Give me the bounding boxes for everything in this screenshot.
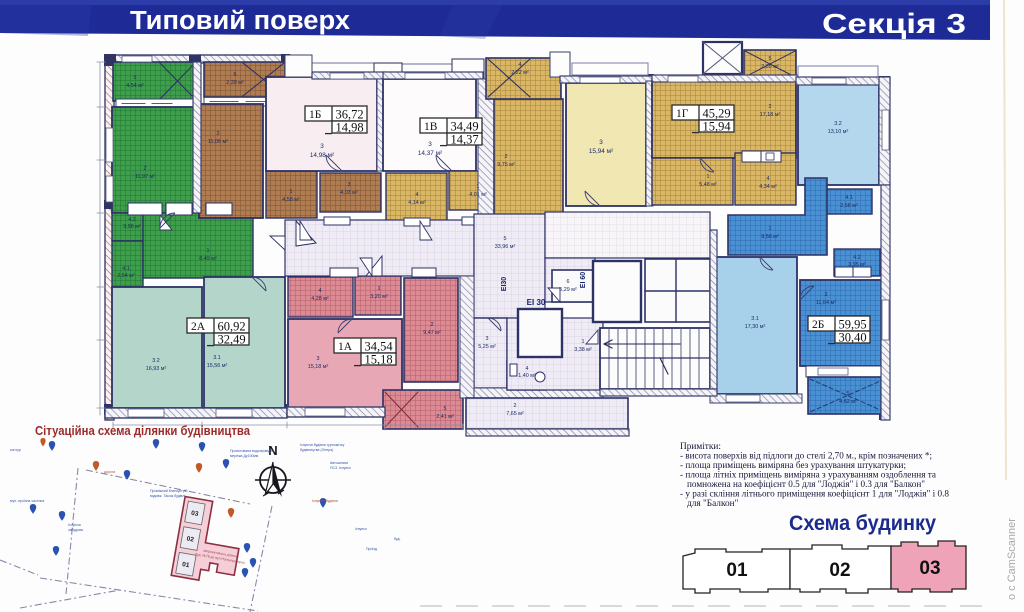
svg-text:2,22 м²: 2,22 м² [511,70,529,76]
svg-text:забудова: забудова [68,528,83,532]
svg-text:- площа літніх приміщень вимір: - площа літніх приміщень виміряна з урах… [680,470,936,481]
svg-text:4,14 м²: 4,14 м² [408,200,426,206]
svg-text:3: 3 [320,143,324,150]
svg-text:ПСЗ. Існуючі: ПСЗ. Існуючі [330,466,351,470]
svg-text:Проїзд: Проїзд [366,547,377,551]
svg-text:2,41 м²: 2,41 м² [436,414,454,420]
svg-text:Існуючі: Існуючі [355,527,367,531]
svg-text:4.2: 4.2 [128,217,136,223]
svg-text:4: 4 [519,62,522,68]
svg-text:1,40 м²: 1,40 м² [518,373,536,379]
svg-text:4,58 м²: 4,58 м² [282,197,300,203]
svg-text:14,37 м²: 14,37 м² [418,150,442,157]
svg-text:4.1: 4.1 [122,266,130,272]
svg-text:17,30 м²: 17,30 м² [745,324,766,330]
svg-text:помножена на коефіцієнт 0.5 дл: помножена на коефіцієнт 0.5 для "Лоджія"… [687,479,925,490]
svg-text:3.1: 3.1 [751,316,759,322]
svg-text:4.2: 4.2 [853,255,861,261]
svg-text:2А: 2А [191,321,206,333]
svg-text:36,72: 36,72 [335,108,363,122]
svg-text:1А: 1А [338,341,353,353]
svg-text:3.1: 3.1 [213,355,221,361]
svg-text:4,01 м²: 4,01 м² [469,192,487,198]
svg-text:3,95 м²: 3,95 м² [848,262,866,268]
svg-text:15,56 м²: 15,56 м² [207,363,228,369]
svg-text:EI 60: EI 60 [580,272,587,288]
svg-text:14,98: 14,98 [335,121,363,135]
svg-text:Автошляхи: Автошляхи [330,461,348,465]
svg-text:3: 3 [428,141,432,148]
svg-text:2: 2 [825,292,828,298]
svg-text:5,29 м²: 5,29 м² [559,287,577,293]
svg-text:2,54 м²: 2,54 м² [117,273,135,279]
svg-text:Схема будинку: Схема будинку [789,512,936,535]
svg-text:Проектована водопровідна: Проектована водопровідна [230,449,274,453]
svg-text:4: 4 [416,192,419,198]
svg-text:9,75 м²: 9,75 м² [497,162,515,168]
svg-text:15,18 м²: 15,18 м² [308,364,329,370]
svg-text:3: 3 [599,139,603,146]
svg-text:5: 5 [444,406,447,412]
svg-text:30,40: 30,40 [838,331,866,345]
svg-text:02: 02 [829,560,850,581]
svg-text:4,03 м²: 4,03 м² [340,190,358,196]
svg-text:4: 4 [767,176,770,182]
svg-text:14,37: 14,37 [450,133,478,147]
svg-text:2Б: 2Б [812,319,824,331]
svg-text:01: 01 [726,560,748,581]
svg-text:для "Балкон": для "Балкон" [687,499,739,509]
svg-text:8,49 м²: 8,49 м² [199,256,217,262]
svg-text:- площа приміщень виміряна без: - площа приміщень виміряна без урахуванн… [680,460,906,471]
svg-text:2: 2 [505,154,508,160]
svg-text:15,94: 15,94 [702,120,731,134]
svg-text:Сітуаційна схема ділянки будів: Сітуаційна схема ділянки будівництва [35,423,251,438]
svg-text:1: 1 [582,339,585,345]
svg-text:1: 1 [290,189,293,195]
svg-text:EI30: EI30 [501,277,508,292]
svg-text:2: 2 [144,166,147,172]
svg-text:5: 5 [847,391,850,397]
svg-text:11,06 м²: 11,06 м² [208,139,228,145]
svg-text:1: 1 [477,184,480,190]
svg-text:контур: контур [10,448,21,452]
svg-text:1Б: 1Б [309,109,321,121]
svg-text:3.2: 3.2 [834,121,842,127]
svg-text:буд.: буд. [394,537,401,541]
svg-text:- у разі скління літнього прим: - у разі скління літнього приміщення кое… [680,489,949,500]
svg-text:16,93 м²: 16,93 м² [146,366,167,372]
svg-text:1Г: 1Г [676,108,689,120]
svg-text:EI 30: EI 30 [527,298,546,307]
svg-text:59,95: 59,95 [838,318,866,332]
svg-text:1: 1 [769,226,772,232]
svg-text:мул. проїзна частина: мул. проїзна частина [10,499,44,503]
svg-text:2,58 м²: 2,58 м² [840,203,858,209]
svg-text:6: 6 [567,279,570,285]
svg-text:Існуюча будівля: Існуюча будівля [312,499,338,503]
svg-text:4,28 м²: 4,28 м² [311,296,329,302]
svg-text:34,54: 34,54 [364,340,393,354]
svg-text:2,35 м²: 2,35 м² [761,64,779,70]
svg-text:3,96 м²: 3,96 м² [123,224,141,230]
svg-text:4,34 м²: 4,34 м² [759,184,777,190]
svg-text:Існуюча будівля гуртожитку: Існуюча будівля гуртожитку [300,443,345,447]
svg-text:вздовж. Також будівлі: вздовж. Також будівлі [150,494,185,498]
svg-text:1В: 1В [424,121,438,133]
svg-text:32,49: 32,49 [217,333,245,347]
svg-text:34,49: 34,49 [450,120,478,134]
svg-text:4,54 м²: 4,54 м² [126,83,144,89]
svg-text:1: 1 [378,286,381,292]
svg-text:5: 5 [769,56,772,62]
svg-text:5: 5 [504,236,507,242]
svg-text:9,47 м²: 9,47 м² [423,330,441,336]
svg-text:60,92: 60,92 [217,320,245,334]
svg-text:4: 4 [526,366,529,372]
svg-text:- висота поверхів від підлоги: - висота поверхів від підлоги до стелі 2… [680,452,932,462]
svg-text:5,48 м²: 5,48 м² [699,182,717,188]
svg-text:15,18: 15,18 [364,353,392,367]
svg-text:6: 6 [234,72,237,78]
svg-text:Проміжний благоустрій: Проміжний благоустрій [150,489,187,493]
svg-text:2: 2 [514,403,517,409]
svg-text:2: 2 [769,104,772,110]
svg-text:9,56 м²: 9,56 м² [761,234,779,240]
svg-text:14,98 м²: 14,98 м² [310,152,334,159]
svg-text:3: 3 [348,182,351,188]
svg-text:2,39 м²: 2,39 м² [226,80,244,86]
svg-text:3,20 м²: 3,20 м² [370,294,388,300]
svg-text:3: 3 [486,336,489,342]
svg-text:4,62 м²: 4,62 м² [839,399,857,405]
svg-text:2: 2 [217,131,220,137]
svg-text:13,10 м²: 13,10 м² [828,129,849,135]
svg-text:мережа Ду100мм: мережа Ду100мм [230,454,259,458]
svg-text:2: 2 [431,322,434,328]
svg-text:Примітки:: Примітки: [680,442,721,452]
svg-text:3.2: 3.2 [152,358,160,364]
svg-text:33,96 м²: 33,96 м² [495,244,516,250]
svg-text:3,38 м²: 3,38 м² [574,347,592,353]
svg-text:5: 5 [134,75,137,81]
svg-text:4: 4 [319,288,322,294]
svg-text:11,97 м²: 11,97 м² [135,174,155,180]
svg-text:7,65 м²: 7,65 м² [506,411,524,417]
svg-text:5,25 м²: 5,25 м² [478,344,496,350]
svg-text:03: 03 [919,558,940,579]
svg-text:1: 1 [707,174,710,180]
svg-text:будівництва (Літера): будівництва (Літера) [300,448,333,452]
svg-text:Секція 3: Секція 3 [822,8,966,39]
svg-text:дорога: дорога [104,470,115,474]
svg-text:17,18 м²: 17,18 м² [760,112,781,118]
svg-text:15,94 м²: 15,94 м² [589,148,613,155]
svg-text:3: 3 [317,356,320,362]
svg-text:4.1: 4.1 [845,195,853,201]
svg-text:о с CamScanner: о с CamScanner [1006,518,1018,600]
svg-text:Типовий поверх: Типовий поверх [130,7,350,35]
svg-text:1: 1 [207,248,210,254]
svg-text:45,29: 45,29 [702,107,730,121]
svg-text:Існуюча: Існуюча [68,523,81,527]
svg-text:11,64 м²: 11,64 м² [816,300,836,306]
